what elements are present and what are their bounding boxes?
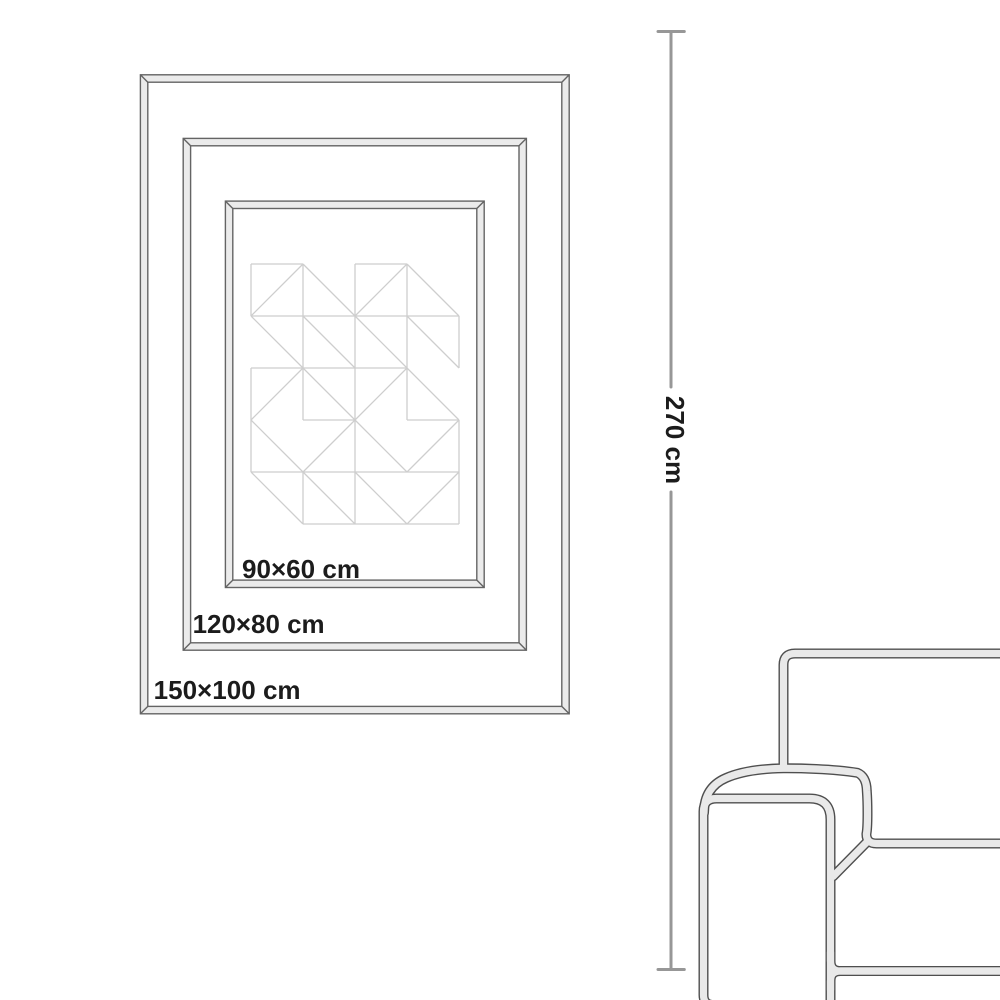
svg-text:120×80 cm: 120×80 cm [193, 609, 325, 639]
svg-text:150×100 cm: 150×100 cm [154, 675, 301, 705]
svg-text:270 cm: 270 cm [660, 396, 690, 484]
svg-text:90×60 cm: 90×60 cm [242, 554, 360, 584]
